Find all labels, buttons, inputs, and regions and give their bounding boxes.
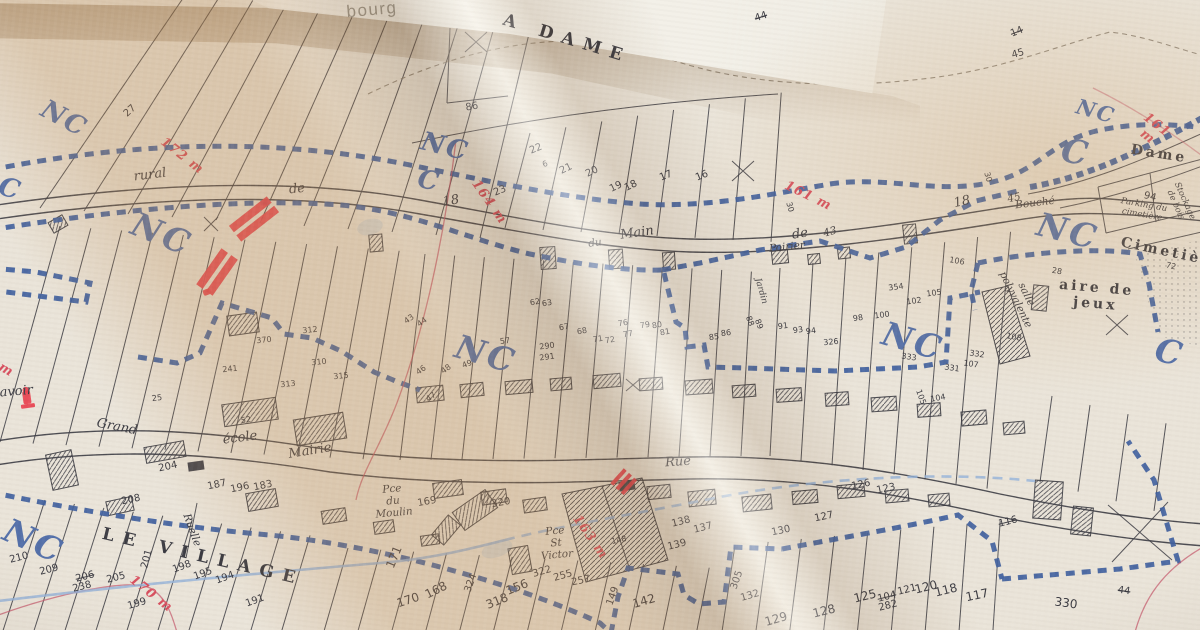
zone-nc-top-left: NC bbox=[36, 94, 93, 143]
ecole-label: école bbox=[222, 428, 258, 447]
parcel-105-b: 105 bbox=[914, 388, 928, 405]
parcel-129: 129 bbox=[763, 609, 789, 629]
parcel-123: 123 bbox=[876, 482, 897, 497]
parcel-204: 204 bbox=[158, 460, 179, 475]
parcel-198: 198 bbox=[171, 559, 193, 576]
parcel-370: 370 bbox=[256, 335, 272, 346]
mairie-label: Mairie bbox=[287, 440, 332, 462]
road-c18: 18 bbox=[442, 192, 461, 210]
parcel-102: 102 bbox=[906, 295, 922, 306]
parcel-126: 126 bbox=[851, 478, 872, 493]
parcel-104-b: 104 bbox=[930, 392, 947, 404]
pt-30-east: 30 bbox=[982, 171, 993, 183]
parcel-52: 52 bbox=[240, 415, 251, 425]
parcel-128: 128 bbox=[811, 601, 837, 620]
parcel-18: 18 bbox=[623, 178, 639, 193]
salle-polyvalente-label: salle polyvalente bbox=[997, 264, 1045, 330]
parcel-86-b: 86 bbox=[720, 328, 731, 338]
parcel-46: 46 bbox=[414, 363, 428, 376]
parcel-23: 23 bbox=[492, 184, 508, 199]
place-du-moulin: Pce du Moulin bbox=[373, 481, 413, 520]
pt-30-west: 30 bbox=[784, 201, 795, 213]
lieu-dit-a-dame: A DAME bbox=[501, 10, 634, 68]
jardin-label: Jardin bbox=[753, 277, 770, 305]
parcel-28: 28 bbox=[1051, 266, 1063, 277]
parcel-132: 132 bbox=[739, 588, 760, 604]
parcel-315: 315 bbox=[333, 371, 349, 382]
parcel-6: 6 bbox=[541, 159, 549, 169]
parcel-199: 199 bbox=[126, 596, 147, 612]
parcel-14: 14 bbox=[1009, 25, 1025, 40]
parcel-169: 169 bbox=[417, 495, 438, 509]
parcel-322: 322 bbox=[531, 564, 552, 580]
parcel-108: 108 bbox=[1006, 331, 1023, 343]
parcel-330: 330 bbox=[1054, 594, 1079, 611]
parcel-142: 142 bbox=[631, 591, 657, 611]
parcel-332: 332 bbox=[969, 348, 985, 359]
parcel-93: 93 bbox=[792, 325, 803, 335]
parcel-21: 21 bbox=[558, 161, 574, 176]
parcel-320: 320 bbox=[491, 496, 512, 510]
parcel-194: 194 bbox=[214, 570, 236, 587]
parcel-44-c: 44 bbox=[1117, 585, 1131, 598]
parcel-312: 312 bbox=[302, 325, 318, 336]
parcel-195: 195 bbox=[192, 566, 214, 583]
parcel-94-b: 94 bbox=[805, 326, 816, 336]
parcel-139: 139 bbox=[666, 537, 687, 552]
parcel-85: 85 bbox=[708, 332, 719, 342]
parcel-81: 81 bbox=[659, 327, 671, 338]
parcel-57: 57 bbox=[499, 336, 510, 346]
parcel-205: 205 bbox=[105, 570, 126, 585]
map-labels-layer: NCCNCNCCNCNCNCNCCCNCA DAMEDameLE VILLAGE… bbox=[0, 0, 1200, 630]
parcel-105: 105 bbox=[926, 287, 942, 298]
parcel-138: 138 bbox=[670, 514, 691, 529]
parcel-149: 149 bbox=[605, 585, 622, 607]
road-rural: rural bbox=[133, 166, 167, 185]
parcel-196: 196 bbox=[230, 481, 251, 496]
parcel-43: 43 bbox=[402, 312, 416, 325]
parcel-148: 148 bbox=[611, 534, 628, 546]
aire-de-jeux-label: aire de jeux bbox=[1043, 276, 1149, 317]
parcel-117: 117 bbox=[964, 586, 989, 604]
parcel-91: 91 bbox=[777, 321, 788, 331]
zone-c-center-top: C bbox=[415, 164, 443, 198]
parcel-16: 16 bbox=[694, 169, 710, 184]
parcel-183: 183 bbox=[253, 479, 274, 494]
parcel-333: 333 bbox=[901, 351, 917, 362]
elev-163m: 163 m bbox=[569, 512, 610, 562]
parcel-47: 47 bbox=[424, 390, 438, 403]
parcel-241: 241 bbox=[222, 364, 238, 375]
parcel-45: 45 bbox=[1010, 47, 1025, 61]
parcel-77: 77 bbox=[622, 329, 634, 340]
zone-nc-center: NC bbox=[451, 327, 522, 382]
road-main: Main bbox=[619, 223, 654, 243]
parcel-106: 106 bbox=[949, 255, 966, 267]
parcel-27: 27 bbox=[122, 103, 139, 120]
parcel-107: 107 bbox=[963, 358, 979, 369]
cimetiere-label: Cimetière bbox=[1119, 234, 1200, 271]
parcel-324: 324 bbox=[463, 572, 480, 594]
zone-nc-center-top: NC bbox=[418, 127, 472, 168]
parcel-20: 20 bbox=[584, 164, 600, 179]
photo-of-cadastral-map: NCCNCNCCNCNCNCNCCCNCA DAMEDameLE VILLAGE… bbox=[0, 0, 1200, 630]
parcel-98: 98 bbox=[852, 313, 863, 323]
parcel-76: 76 bbox=[617, 318, 629, 329]
stockage-label: Stockage de bois bbox=[1163, 181, 1197, 226]
parcel-130: 130 bbox=[771, 524, 792, 539]
parcel-72-b: 72 bbox=[604, 335, 616, 346]
parcel-168: 168 bbox=[423, 579, 450, 602]
parcel-171: 171 bbox=[383, 544, 405, 570]
zone-nc-left: NC bbox=[126, 204, 199, 264]
road-de-right: de bbox=[791, 225, 809, 242]
parcel-25: 25 bbox=[151, 393, 162, 403]
zone-nc-right-upper: NC bbox=[1033, 205, 1103, 258]
parcel-22: 22 bbox=[528, 142, 544, 157]
parcel-67: 67 bbox=[558, 322, 570, 333]
parcel-238: 238 bbox=[71, 579, 92, 594]
road-de-left: de bbox=[288, 181, 305, 198]
parcel-191: 191 bbox=[244, 593, 266, 610]
parcel-170: 170 bbox=[395, 590, 421, 610]
parcel-68: 68 bbox=[576, 326, 588, 337]
parcel-305: 305 bbox=[729, 569, 746, 591]
zone-c-top-right: C bbox=[1058, 130, 1094, 173]
parcel-331: 331 bbox=[944, 362, 960, 373]
parcel-156: 156 bbox=[504, 576, 530, 598]
parcel-44-b: 44 bbox=[415, 315, 429, 328]
parcel-290: 290 bbox=[539, 340, 555, 351]
parcel-79: 79 bbox=[639, 320, 651, 331]
parcel-72-cimetiere: 72 bbox=[1165, 260, 1177, 271]
road-pt-43: 43 bbox=[822, 224, 838, 239]
parcel-291: 291 bbox=[539, 351, 555, 362]
zone-c-right-edge: C bbox=[1151, 330, 1189, 375]
card-caption: bourg bbox=[346, 0, 399, 22]
parcel-326: 326 bbox=[823, 337, 839, 348]
parcel-86: 86 bbox=[465, 100, 479, 113]
parcel-63: 63 bbox=[541, 298, 553, 309]
zone-nc-top-right: NC bbox=[1073, 93, 1118, 128]
parcel-127: 127 bbox=[814, 510, 835, 525]
street-grand: Grand bbox=[95, 416, 138, 439]
parcel-17: 17 bbox=[658, 169, 674, 184]
parcel-19: 19 bbox=[608, 179, 624, 194]
parcel-44-top: 44 bbox=[753, 10, 769, 24]
parcel-310: 310 bbox=[311, 357, 327, 368]
parcel-62: 62 bbox=[529, 297, 541, 308]
lavoir-label: Lavoir bbox=[0, 383, 34, 402]
parcel-354: 354 bbox=[888, 281, 904, 292]
parcel-137: 137 bbox=[692, 520, 713, 535]
zone-c-left-edge: C bbox=[0, 171, 25, 207]
parcel-208: 208 bbox=[121, 493, 142, 508]
elev-m-edge: m bbox=[0, 360, 16, 380]
street-rue: Rue bbox=[665, 454, 692, 471]
parcel-116: 116 bbox=[997, 514, 1018, 529]
road-du: du bbox=[587, 236, 602, 250]
parcel-313: 313 bbox=[280, 379, 296, 390]
road-18-east: 18 bbox=[952, 193, 971, 211]
parcel-71: 71 bbox=[592, 334, 604, 345]
parcel-125: 125 bbox=[852, 586, 878, 605]
parcel-187: 187 bbox=[207, 478, 228, 493]
parcel-257: 257 bbox=[571, 574, 592, 589]
place-st-victor: Pce St Victor bbox=[538, 524, 573, 563]
